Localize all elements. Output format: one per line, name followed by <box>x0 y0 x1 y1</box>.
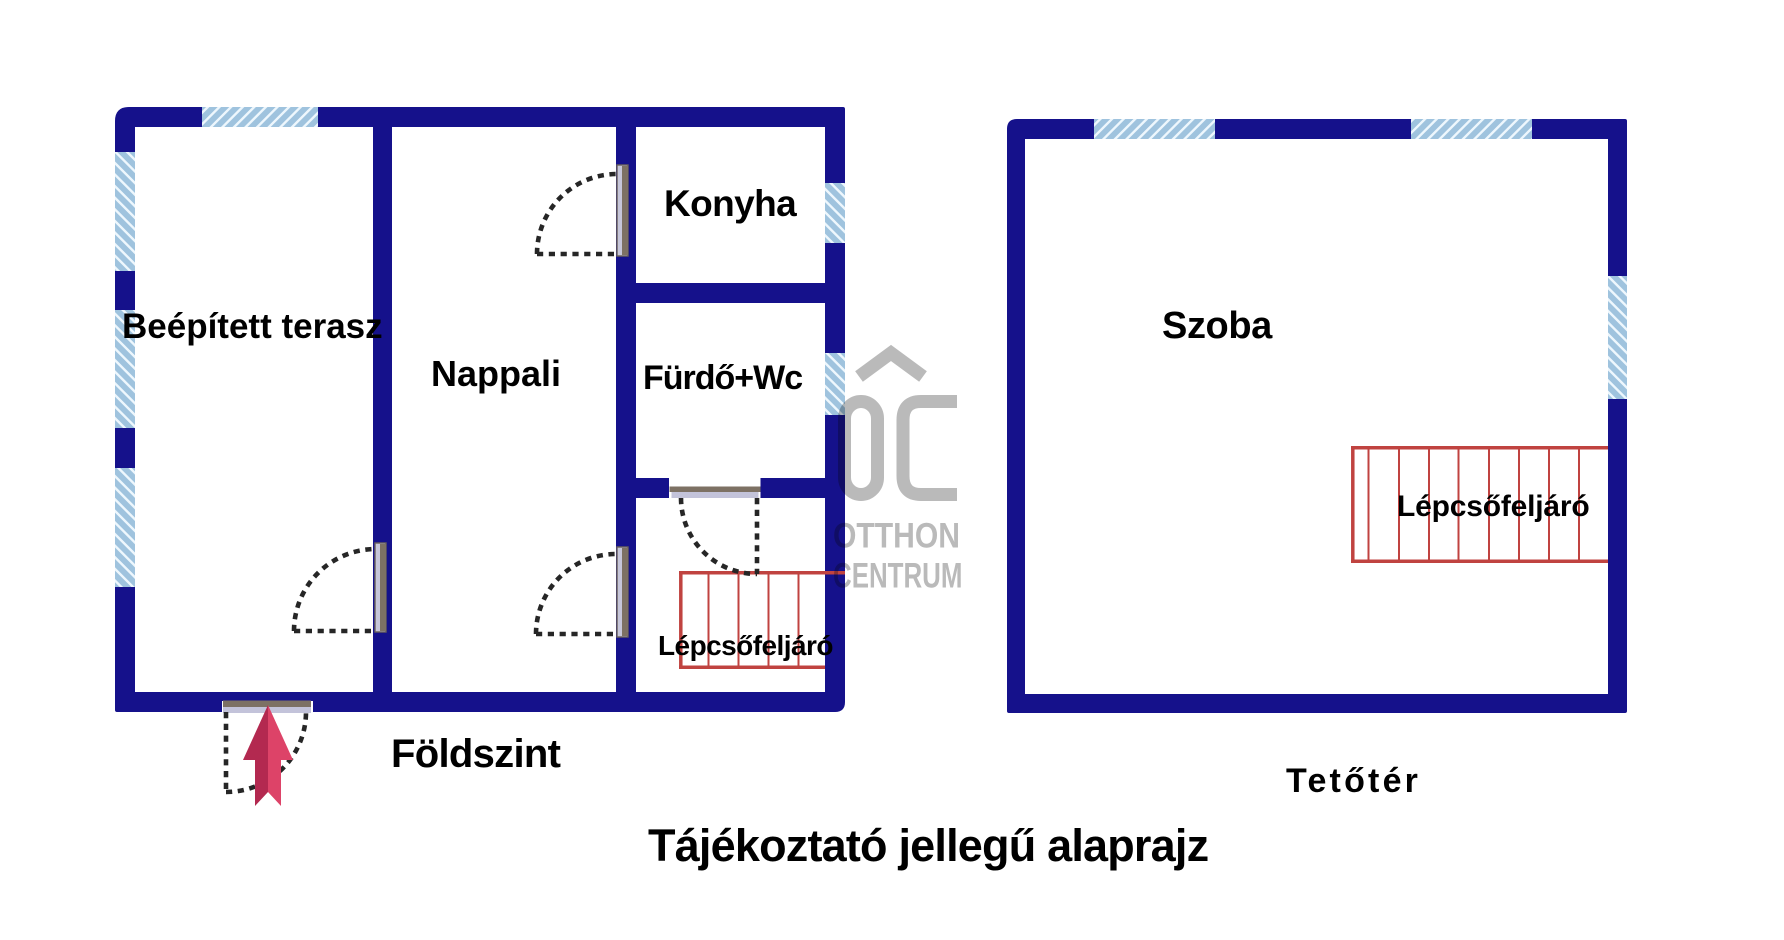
svg-text:Lépcsőfeljáró: Lépcsőfeljáró <box>1397 490 1589 523</box>
svg-text:Nappali: Nappali <box>431 353 561 394</box>
svg-text:Beépített terasz: Beépített terasz <box>122 307 383 346</box>
svg-text:Lépcsőfeljáró: Lépcsőfeljáró <box>658 630 833 661</box>
svg-text:Földszint: Földszint <box>391 732 561 776</box>
svg-text:CENTRUM: CENTRUM <box>833 556 962 596</box>
svg-text:Konyha: Konyha <box>664 183 797 224</box>
svg-text:Tetőtér: Tetőtér <box>1286 762 1421 800</box>
svg-text:OTTHON: OTTHON <box>833 515 960 555</box>
svg-text:Tájékoztató jellegű alaprajz: Tájékoztató jellegű alaprajz <box>648 820 1208 871</box>
svg-text:Szoba: Szoba <box>1162 305 1273 347</box>
svg-text:Fürdő+Wc: Fürdő+Wc <box>643 359 802 397</box>
